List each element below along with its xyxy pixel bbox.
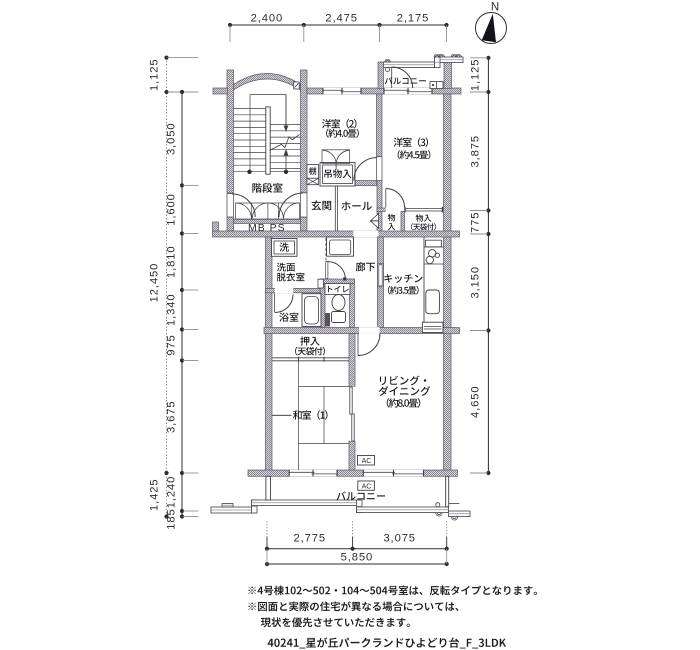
- svg-text:1,125: 1,125: [470, 59, 482, 92]
- svg-text:1,600: 1,600: [166, 193, 178, 226]
- svg-text:1,810: 1,810: [166, 246, 178, 279]
- svg-text:3,075: 3,075: [383, 533, 416, 545]
- svg-text:3,050: 3,050: [166, 122, 178, 155]
- svg-text:3,150: 3,150: [470, 266, 482, 299]
- svg-text:2,775: 2,775: [294, 533, 327, 545]
- svg-text:3,875: 3,875: [470, 135, 482, 168]
- svg-text:2,175: 2,175: [397, 13, 430, 25]
- svg-text:12,450: 12,450: [149, 263, 161, 303]
- svg-text:1,240: 1,240: [166, 476, 178, 509]
- svg-text:185: 185: [166, 508, 178, 529]
- svg-text:AC: AC: [362, 483, 372, 490]
- svg-text:MB PS: MB PS: [248, 222, 286, 234]
- svg-text:4,650: 4,650: [470, 386, 482, 419]
- svg-text:975: 975: [166, 334, 178, 355]
- svg-text:775: 775: [470, 212, 482, 233]
- svg-text:AC: AC: [362, 458, 372, 465]
- svg-text:1,425: 1,425: [149, 479, 161, 512]
- svg-text:2,400: 2,400: [251, 13, 284, 25]
- svg-text:N: N: [491, 2, 499, 14]
- svg-text:2,475: 2,475: [325, 13, 358, 25]
- svg-text:5,850: 5,850: [341, 552, 374, 564]
- svg-text:1,125: 1,125: [149, 59, 161, 92]
- svg-text:3,675: 3,675: [166, 401, 178, 434]
- svg-text:1,340: 1,340: [166, 294, 178, 327]
